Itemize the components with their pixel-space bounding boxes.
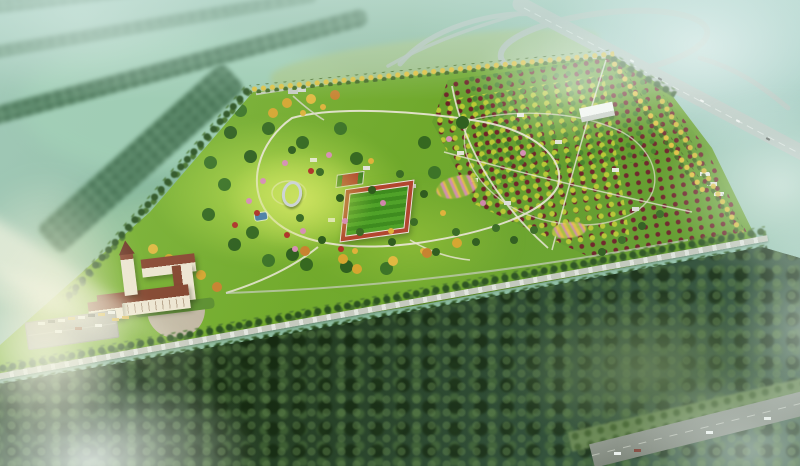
- aerial-rendering: [0, 0, 800, 466]
- atmospheric-haze: [0, 0, 800, 100]
